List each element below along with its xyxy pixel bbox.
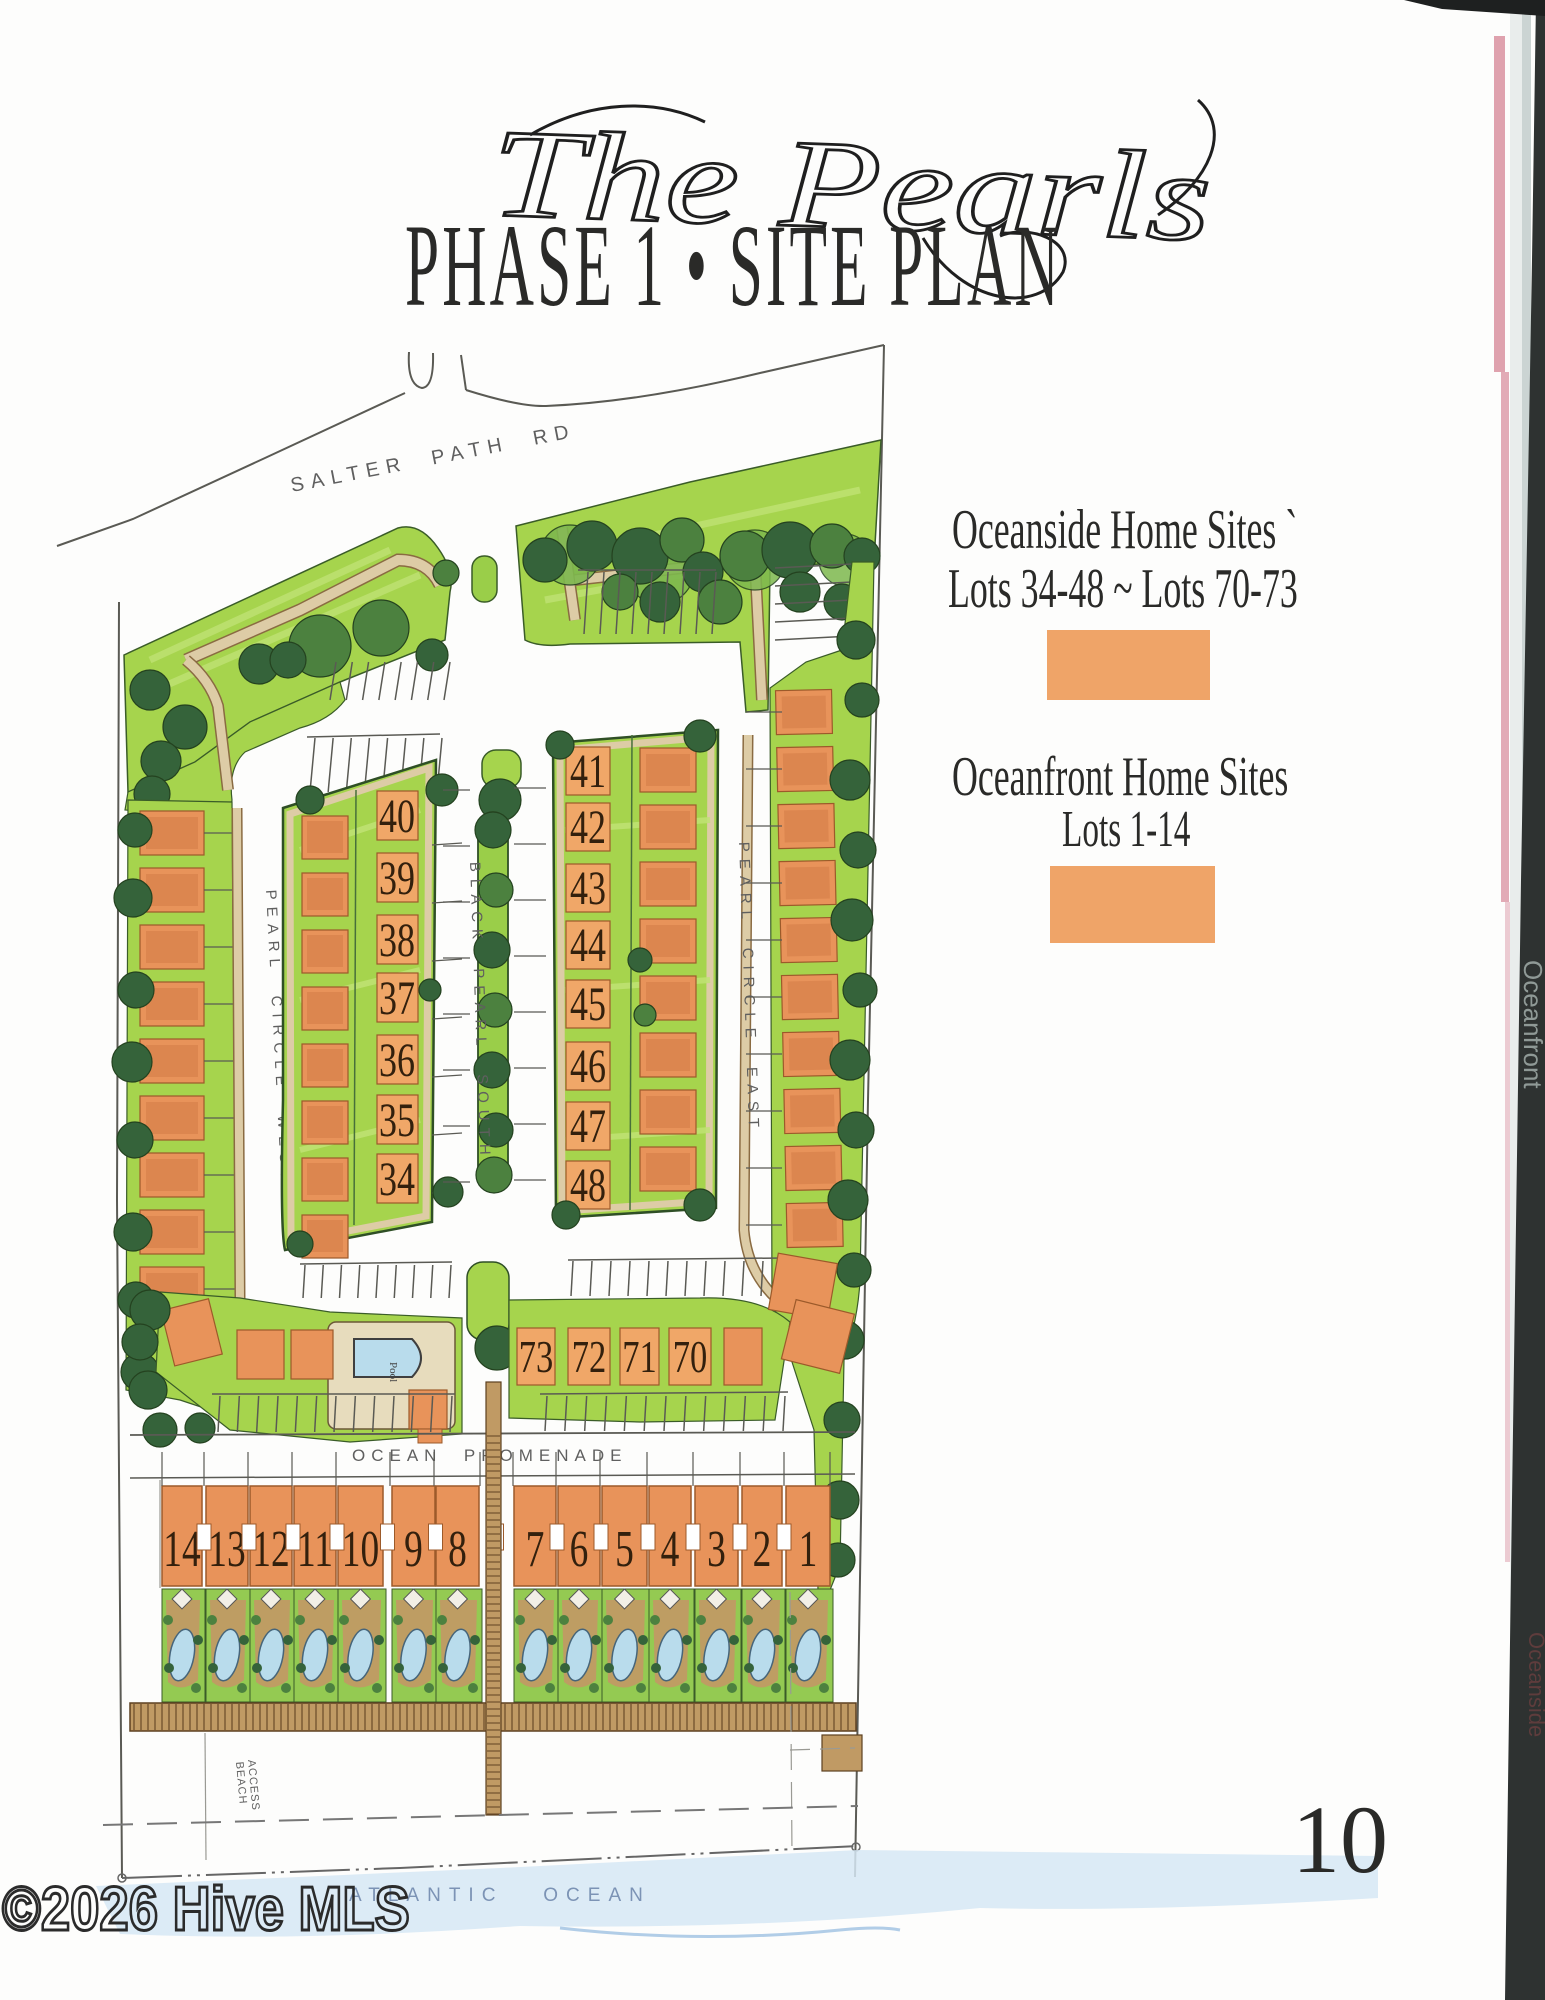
svg-text:39: 39 [379,852,415,905]
svg-text:Lots 1-14: Lots 1-14 [1062,801,1191,858]
svg-text:Oceanfront: Oceanfront [1518,960,1545,1089]
svg-text:Oceanside: Oceanside [1524,1632,1545,1737]
svg-text:47: 47 [570,1100,606,1153]
svg-text:PHASE 1 • SITE PLAN: PHASE 1 • SITE PLAN [405,201,1062,331]
svg-text:5: 5 [615,1520,634,1577]
svg-text:41: 41 [570,745,606,798]
svg-text:Lots 34-48 ~ Lots 70-73: Lots 34-48 ~ Lots 70-73 [948,558,1298,620]
svg-text:10: 10 [1292,1786,1388,1893]
svg-text:1: 1 [799,1520,818,1577]
svg-text:4: 4 [661,1520,680,1577]
svg-text:37: 37 [379,972,415,1025]
svg-text:43: 43 [570,862,606,915]
svg-text:7: 7 [526,1520,545,1577]
svg-text:36: 36 [379,1034,415,1087]
svg-text:6: 6 [570,1520,589,1577]
svg-text:38: 38 [379,914,415,967]
svg-text:34: 34 [379,1153,415,1206]
svg-text:Oceanside Home Sites `: Oceanside Home Sites ` [952,499,1297,561]
svg-text:2: 2 [753,1520,772,1577]
svg-text:46: 46 [570,1040,606,1093]
svg-text:10: 10 [342,1520,379,1577]
svg-text:13: 13 [208,1520,245,1577]
svg-text:Pool: Pool [387,1362,399,1382]
svg-text:70: 70 [673,1331,707,1382]
svg-text:14: 14 [163,1520,200,1577]
svg-text:12: 12 [252,1520,289,1577]
svg-text:©2026 Hive MLS: ©2026 Hive MLS [2,1875,410,1944]
svg-text:8: 8 [448,1520,467,1577]
svg-text:42: 42 [570,801,606,854]
svg-text:45: 45 [570,978,606,1031]
svg-text:35: 35 [379,1094,415,1147]
svg-text:44: 44 [570,919,606,972]
svg-text:11: 11 [297,1520,333,1577]
svg-text:9: 9 [404,1520,423,1577]
svg-text:72: 72 [572,1331,606,1382]
svg-text:73: 73 [519,1331,553,1382]
svg-text:40: 40 [379,790,415,843]
svg-text:3: 3 [707,1520,726,1577]
svg-text:Oceanfront Home Sites: Oceanfront Home Sites [952,746,1288,808]
svg-text:71: 71 [622,1331,656,1382]
